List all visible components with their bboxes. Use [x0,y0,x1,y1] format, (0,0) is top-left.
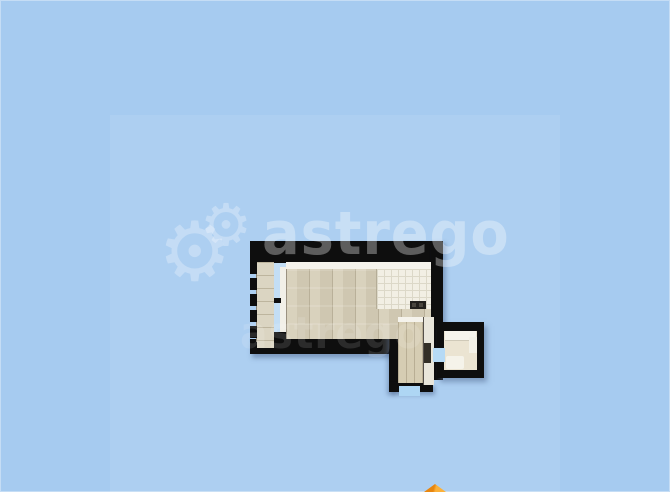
interior-door-leaf [424,343,431,363]
bathroom-fixture [469,337,477,353]
balcony-floor [256,262,274,348]
bathroom-toilet [446,356,464,369]
window-mid-post [274,298,281,303]
interior-door-opening [433,348,445,362]
cooktop [410,301,426,309]
burner-icon [419,303,423,307]
balcony-railing [250,262,257,348]
corridor-floor [398,321,423,383]
burner-icon [412,303,416,307]
top-wall-inner-face [286,262,431,269]
corridor-top-wall-face [398,317,424,322]
floor-plan-scene: ⚙ ⚙ astrego astrego [0,0,670,492]
window-bottom-pier [274,332,286,354]
entrance-door-opening [399,386,420,396]
